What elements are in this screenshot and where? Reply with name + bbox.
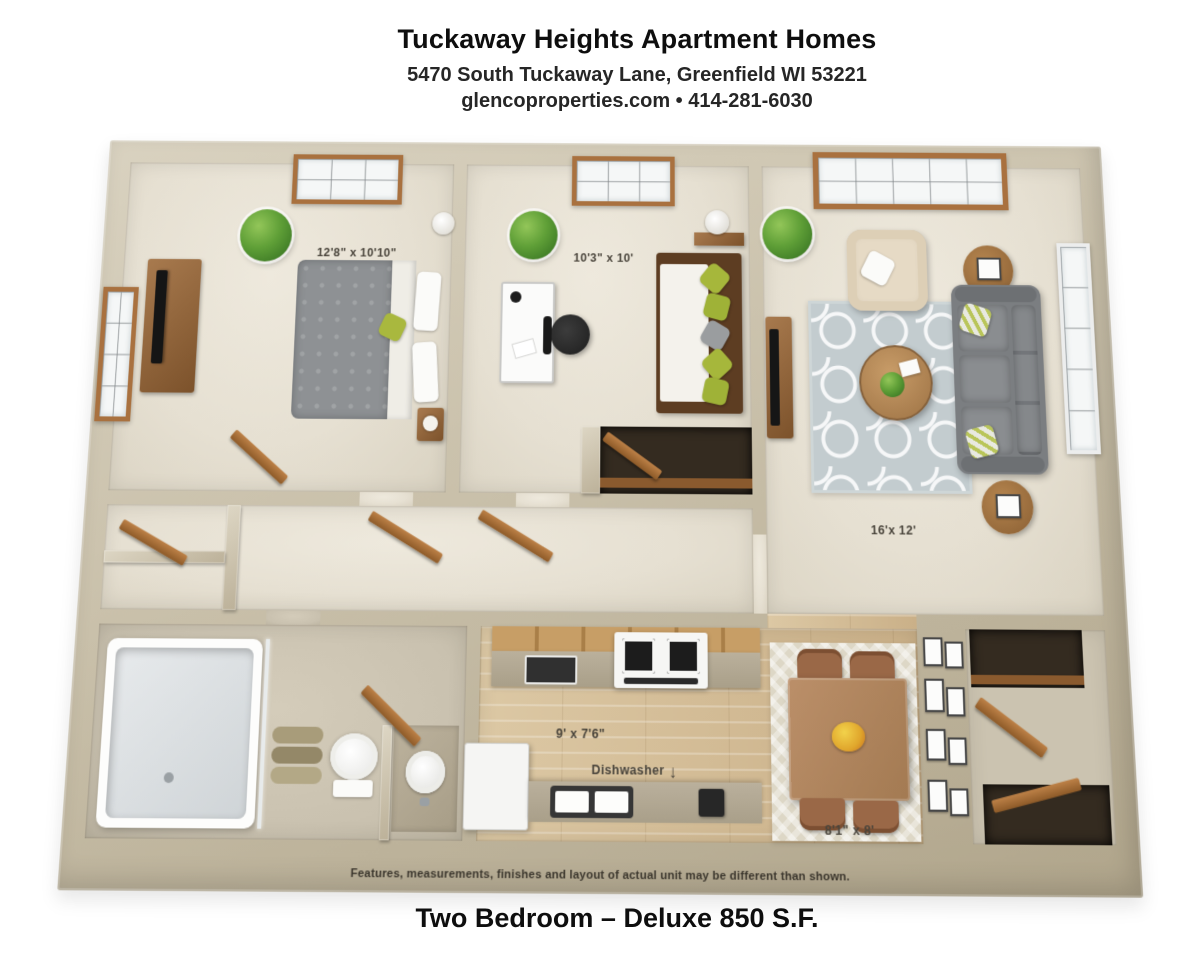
picture-frame: [949, 788, 969, 816]
room-dimension-label: 10'3" x 10': [573, 251, 633, 265]
window: [813, 152, 1009, 210]
disclaimer-text: Features, measurements, finishes and lay…: [58, 865, 1142, 886]
tv: [769, 329, 780, 426]
picture-frame: [923, 637, 943, 666]
toilet: [329, 733, 379, 797]
picture-frame: [977, 258, 1002, 281]
contact-line: glencoproperties.com • 414-281-6030: [74, 90, 1200, 113]
toilet-bowl: [329, 733, 378, 780]
towel: [270, 767, 322, 784]
dresser: [139, 259, 201, 393]
plant: [762, 209, 813, 260]
dishwasher-text: Dishwasher: [591, 762, 664, 777]
sofa-arm: [961, 456, 1045, 472]
floorplan: 12'8" x 10'10": [57, 142, 1143, 894]
duvet: [291, 260, 393, 419]
bedroom2-doorway: [516, 493, 570, 507]
vanity: [391, 725, 459, 832]
towel: [272, 727, 324, 744]
plan-name: Two Bedroom – Deluxe 850 S.F.: [415, 903, 818, 933]
sofa: [951, 285, 1049, 475]
sofa-cushion: [959, 355, 1012, 403]
closet-shelf: [600, 478, 752, 489]
dining-chair: [797, 649, 842, 680]
sink-basin: [555, 791, 589, 813]
plant: [880, 372, 905, 397]
toilet-tank: [333, 780, 373, 797]
fruit-bowl: [831, 722, 865, 752]
desk-lamp: [510, 291, 521, 302]
towels: [270, 727, 324, 789]
room-dimension-label: 16'x 12': [871, 523, 917, 537]
window: [291, 154, 403, 204]
dishwasher-label: Dishwasher↓: [591, 761, 677, 783]
header: Tuckaway Heights Apartment Homes 5470 So…: [74, 24, 1200, 113]
armchair: [846, 230, 928, 311]
bed: [291, 260, 445, 420]
bathroom-doorway: [266, 610, 321, 625]
picture-frame: [948, 737, 968, 765]
footer: Two Bedroom – Deluxe 850 S.F.: [34, 903, 1200, 934]
room-dimension-label: 12'8" x 10'10": [317, 246, 397, 260]
picture-frame: [924, 679, 945, 713]
coffee-maker: [699, 789, 725, 817]
picture-frame: [927, 780, 948, 812]
sofa-back-cushions: [1011, 305, 1042, 455]
down-arrow-icon: ↓: [669, 762, 678, 782]
book: [899, 359, 921, 378]
bed-pillow: [413, 271, 442, 331]
address-line: 5470 South Tuckaway Lane, Greenfield WI …: [74, 64, 1200, 87]
living-dining-opening: [767, 614, 916, 629]
entry-closet: [969, 629, 1084, 688]
burner-grate: [667, 639, 700, 674]
fridge: [462, 743, 529, 831]
bedroom2-closet: [600, 426, 753, 494]
sofa-arm: [954, 287, 1036, 303]
microwave: [524, 655, 577, 684]
bathtub-basin: [105, 647, 254, 819]
vase: [705, 210, 729, 234]
picture-frame: [996, 494, 1022, 518]
kitchen-sink: [550, 786, 633, 819]
closet-shelf: [971, 675, 1085, 685]
bathtub: [95, 638, 263, 829]
stove: [614, 632, 708, 689]
faucet: [419, 798, 429, 807]
headboard-shelf: [694, 232, 744, 245]
room-dimension-label: 9' x 7'6": [556, 726, 605, 741]
dining-table: [788, 678, 911, 801]
accent-pillow: [701, 376, 730, 406]
room-dimension-label: 8'1" x 8': [825, 823, 875, 838]
office-chair-back: [543, 316, 552, 354]
closet-wall: [581, 426, 601, 493]
window: [572, 156, 675, 206]
vanity-sink: [405, 751, 446, 794]
hall-living-opening: [753, 534, 767, 613]
picture-frame: [944, 642, 963, 669]
floorplan-render: 12'8" x 10'10": [57, 140, 1143, 897]
picture-frame: [926, 729, 947, 761]
office-chair: [550, 314, 590, 354]
papers: [511, 338, 537, 359]
page-title: Tuckaway Heights Apartment Homes: [74, 24, 1200, 55]
picture-frame: [946, 687, 966, 716]
burner-grate: [622, 638, 655, 673]
towel: [271, 747, 323, 764]
bed-pillow: [412, 341, 439, 402]
daybed: [656, 253, 743, 414]
stove-front: [624, 678, 698, 685]
throw-pillow: [859, 249, 896, 287]
bedroom1-doorway: [359, 492, 413, 506]
entry-lower-closet: [983, 784, 1113, 845]
sink-basin: [595, 791, 629, 813]
